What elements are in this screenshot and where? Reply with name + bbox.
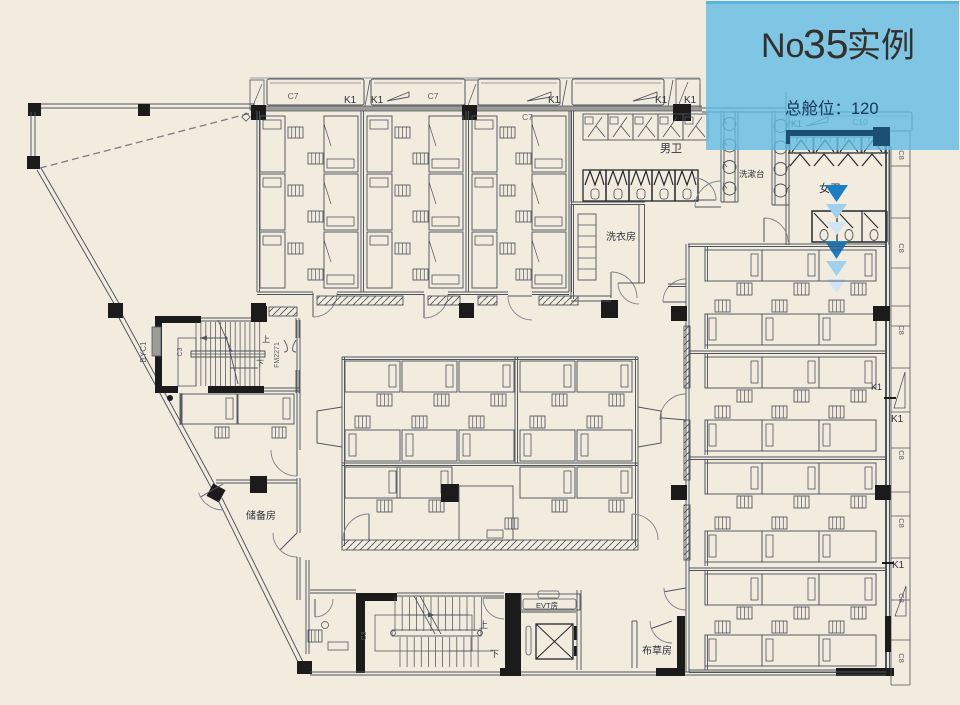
svg-text:下: 下 [256, 359, 264, 368]
svg-text:总舱位：120: 总舱位：120 [785, 99, 879, 118]
svg-text:布草房: 布草房 [642, 644, 672, 657]
svg-text:No: No [761, 27, 804, 65]
svg-text:K1: K1 [891, 414, 904, 425]
svg-text:储备房: 储备房 [246, 509, 276, 522]
svg-text:BYC1: BYC1 [139, 341, 148, 362]
svg-text:K1: K1 [344, 95, 357, 106]
svg-text:C8: C8 [897, 518, 906, 528]
svg-text:洗衣房: 洗衣房 [606, 230, 636, 243]
svg-text:C3: C3 [177, 347, 184, 356]
svg-text:K1: K1 [892, 560, 905, 571]
svg-text:EVT房: EVT房 [536, 600, 558, 610]
svg-text:洗漱台: 洗漱台 [739, 169, 765, 179]
svg-text:上: 上 [262, 335, 270, 344]
svg-text:C8: C8 [897, 150, 906, 160]
svg-text:K1: K1 [655, 95, 668, 106]
svg-text:C7: C7 [288, 91, 299, 101]
svg-text:C8: C8 [897, 653, 906, 663]
svg-text:男卫: 男卫 [660, 143, 682, 155]
svg-text:实例: 实例 [847, 27, 915, 65]
svg-text:35: 35 [803, 21, 849, 67]
svg-text:C7: C7 [522, 112, 533, 122]
svg-text:K1: K1 [548, 95, 561, 106]
svg-text:下: 下 [490, 649, 499, 659]
svg-text:C3: C3 [361, 631, 368, 640]
svg-text:上: 上 [479, 620, 488, 630]
svg-text:C8: C8 [897, 325, 906, 335]
svg-text:C7: C7 [428, 91, 439, 101]
svg-text:FM2271: FM2271 [274, 342, 281, 368]
svg-text:K1: K1 [871, 382, 882, 392]
svg-text:C8: C8 [897, 450, 906, 460]
svg-text:C8: C8 [897, 243, 906, 253]
svg-text:K1: K1 [371, 95, 384, 106]
